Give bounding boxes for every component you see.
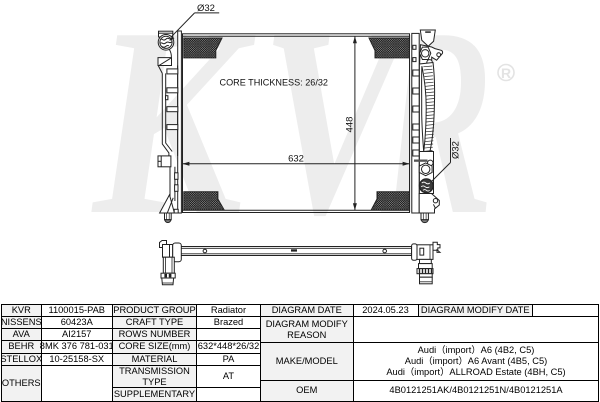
svg-text:R: R (501, 65, 511, 81)
svg-text:CORE THICKNESS: 26/32: CORE THICKNESS: 26/32 (220, 78, 329, 88)
svg-text:448: 448 (344, 117, 355, 133)
svg-text:Ø32: Ø32 (451, 141, 462, 159)
svg-text:632: 632 (288, 154, 304, 165)
svg-text:Ø32: Ø32 (197, 3, 215, 14)
